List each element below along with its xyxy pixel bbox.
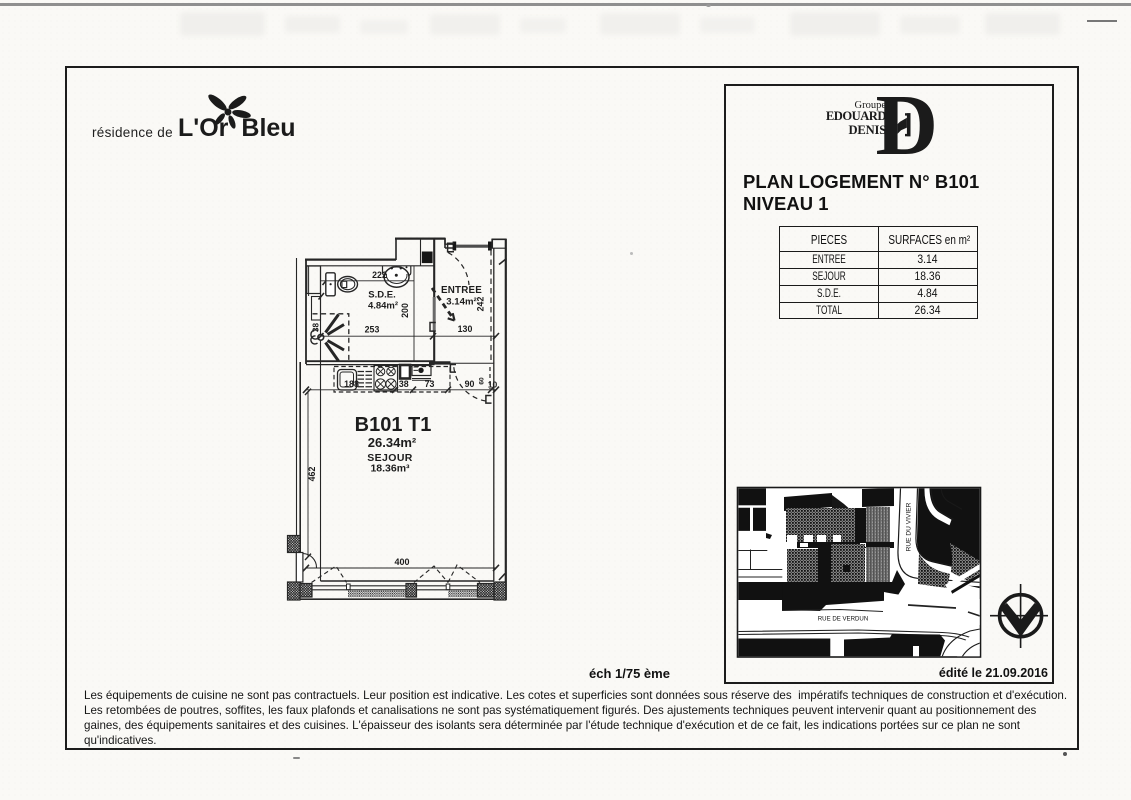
svg-text:RUE DU VIVIER: RUE DU VIVIER — [906, 502, 913, 551]
svg-text:RUE DE VERDUN: RUE DE VERDUN — [818, 616, 868, 623]
